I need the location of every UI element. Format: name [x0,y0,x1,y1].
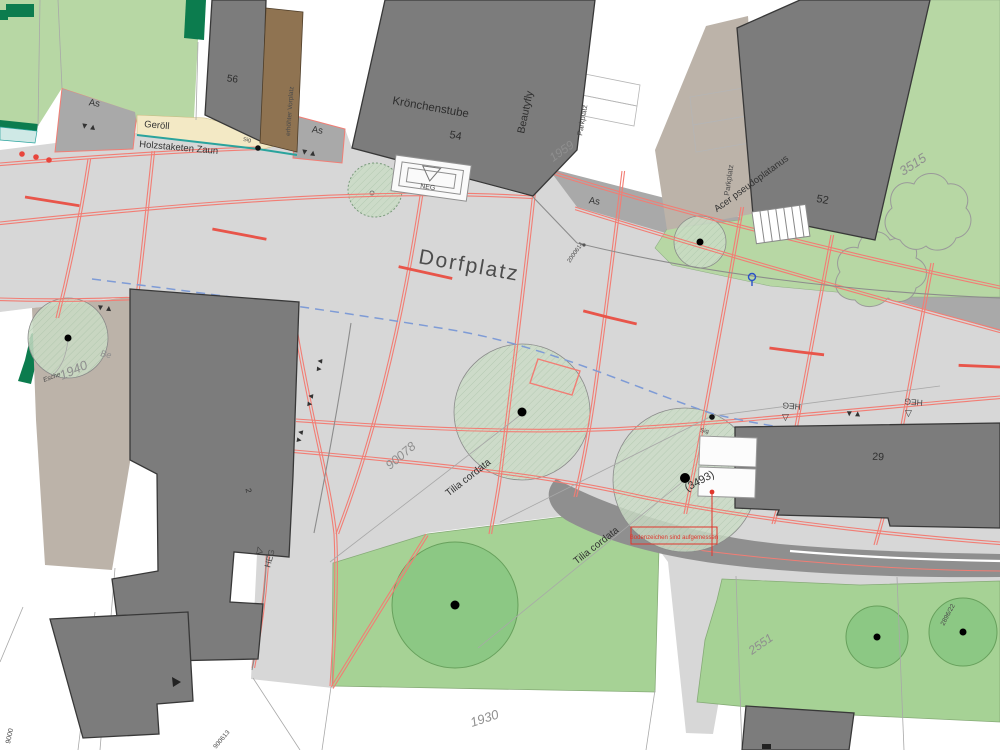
label-heg-mid: HEG [782,400,801,412]
triangle-down-icon: ▽ [782,412,789,422]
survey-point-fence [255,145,261,151]
vorplatz-brown-strip [260,8,303,152]
updown-icon: ▼▲ [305,392,316,409]
site-plan-map: Dorfplatz 56 Geröll Holzstaketen Zaun Si… [0,0,1000,750]
red-point-1 [19,151,25,157]
dorfplatz-survey-plan: Dorfplatz 56 Geröll Holzstaketen Zaun Si… [0,0,1000,750]
triangle-down-icon: ▽ [905,408,912,418]
label-as-west: As [88,97,101,109]
label-building-54: 54 [448,129,462,143]
label-heg-east: HEG [904,396,923,408]
label-as-east: As [588,195,601,207]
label-edge-9000: 9000 [5,728,15,745]
stairs-building-52 [752,204,810,243]
tree-trunk-acer [697,239,704,246]
updown-icon: ▼▲ [96,302,113,313]
note-point [710,490,715,495]
tree-trunk-se-2 [960,629,967,636]
tree-trunk-tilia-west [518,408,527,417]
label-sig-top: Sig [243,137,251,144]
survey-point-sig [709,414,715,420]
label-red-note: Bodenzeichen sind aufgemessen [630,535,718,541]
updown-icon: ▼▲ [845,408,862,419]
tree-trunk-south [451,601,460,610]
label-building-56: 56 [226,73,239,86]
label-geroell: Geröll [144,119,170,132]
red-point-2 [33,154,39,160]
hedge-top [6,4,34,17]
label-building-29: 29 [872,451,884,464]
label-building-52: 52 [815,193,829,207]
tree-trunk-se-1 [874,634,881,641]
tree-trunk-1940 [65,335,72,342]
building-bottom-right [742,706,854,750]
label-line-900613: 900613 [212,729,232,750]
label-sig: Sig [700,428,709,435]
hedge-top-corner [0,10,8,20]
updown-icon: ▼▲ [315,357,325,374]
label-as-mid: As [311,124,324,136]
label-parcel-1930: 1930 [468,706,501,729]
red-point-3 [46,157,52,163]
mark-bottom-right-building [762,744,771,749]
hedge-vertical [184,0,206,40]
building-southwest [50,612,193,738]
